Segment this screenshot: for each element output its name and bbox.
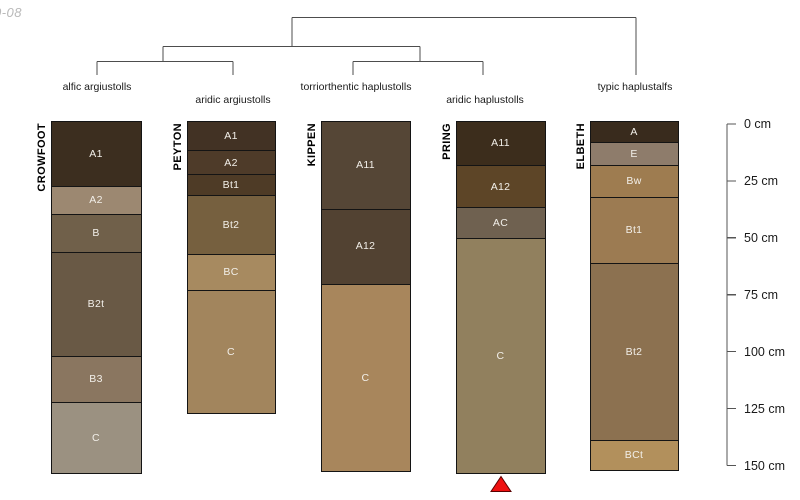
profile-name-label: ELBETH — [575, 123, 587, 169]
horizon-bt2: Bt2 — [591, 263, 678, 439]
depth-tick-label: 150 cm — [744, 459, 785, 473]
soil-column-peyton: A1A2Bt1Bt2BCC — [187, 121, 276, 414]
horizon-label: A2 — [89, 195, 102, 206]
horizon-label: B — [92, 228, 99, 239]
horizon-label: A — [630, 127, 637, 138]
depth-tick-label: 75 cm — [744, 288, 778, 302]
horizon-ac: AC — [457, 207, 545, 238]
profile-name-label: PRING — [441, 123, 453, 160]
soil-column-kippen: A11A12C — [321, 121, 411, 472]
horizon-label: Bw — [626, 176, 641, 187]
horizon-label: A11 — [491, 138, 510, 149]
horizon-a1: A1 — [188, 122, 275, 150]
marker-triangle-icon — [491, 477, 511, 492]
profile-name-label: PEYTON — [172, 123, 184, 170]
soil-column-elbeth: AEBwBt1Bt2BCt — [590, 121, 679, 471]
depth-tick-label: 25 cm — [744, 174, 778, 188]
horizon-label: A1 — [89, 149, 102, 160]
horizon-label: A11 — [356, 160, 375, 171]
taxonomy-label: aridic haplustolls — [446, 94, 524, 106]
horizon-label: C — [227, 347, 235, 358]
horizon-a12: A12 — [322, 209, 410, 284]
horizon-label: C — [362, 373, 370, 384]
horizon-label: Bt2 — [626, 347, 643, 358]
horizon-b3: B3 — [52, 356, 141, 402]
depth-tick-label: 0 cm — [744, 117, 771, 131]
soil-column-pring: A11A12ACC — [456, 121, 546, 474]
horizon-c: C — [457, 238, 545, 472]
horizon-label: BC — [223, 267, 238, 278]
horizon-label: Bt2 — [223, 220, 240, 231]
horizon-a11: A11 — [457, 122, 545, 165]
horizon-bt2: Bt2 — [188, 195, 275, 254]
horizon-label: BCt — [625, 450, 643, 461]
horizon-label: C — [92, 433, 100, 444]
horizon-b: B — [52, 214, 141, 252]
taxonomy-label: aridic argiustolls — [195, 94, 270, 106]
horizon-label: Bt1 — [626, 225, 643, 236]
horizon-b2t: B2t — [52, 252, 141, 357]
taxonomy-label: torriorthentic haplustolls — [301, 81, 412, 93]
horizon-label: A1 — [224, 131, 237, 142]
horizon-bt1: Bt1 — [188, 174, 275, 194]
horizon-a2: A2 — [52, 186, 141, 214]
depth-tick-label: 50 cm — [744, 231, 778, 245]
horizon-a2: A2 — [188, 150, 275, 174]
horizon-a1: A1 — [52, 122, 141, 186]
profile-name-label: KIPPEN — [306, 123, 318, 166]
horizon-a11: A11 — [322, 122, 410, 209]
horizon-label: A12 — [491, 182, 511, 193]
horizon-label: A12 — [356, 241, 376, 252]
depth-tick-label: 100 cm — [744, 345, 785, 359]
profile-name-label: CROWFOOT — [36, 123, 48, 192]
horizon-a: A — [591, 122, 678, 142]
horizon-label: E — [630, 149, 637, 160]
depth-tick-label: 125 cm — [744, 402, 785, 416]
horizon-c: C — [188, 290, 275, 413]
soil-profile-figure: 0-08 alfic argiusto — [0, 0, 800, 500]
horizon-label: B3 — [89, 374, 102, 385]
taxonomy-label: typic haplustalfs — [598, 81, 673, 93]
horizon-c: C — [52, 402, 141, 473]
dendrogram-lines — [97, 18, 636, 76]
horizon-label: C — [497, 351, 505, 362]
horizon-c: C — [322, 284, 410, 472]
horizon-label: B2t — [88, 299, 105, 310]
horizon-label: A2 — [224, 158, 237, 169]
horizon-e: E — [591, 142, 678, 165]
soil-column-crowfoot: A1A2BB2tB3C — [51, 121, 142, 474]
taxonomy-label: alfic argiustolls — [63, 81, 132, 93]
horizon-label: AC — [493, 218, 508, 229]
horizon-bw: Bw — [591, 165, 678, 197]
horizon-bc: BC — [188, 254, 275, 290]
horizon-bct: BCt — [591, 440, 678, 471]
horizon-bt1: Bt1 — [591, 197, 678, 263]
horizon-a12: A12 — [457, 165, 545, 207]
horizon-label: Bt1 — [223, 180, 240, 191]
depth-scale-axis — [727, 124, 736, 465]
